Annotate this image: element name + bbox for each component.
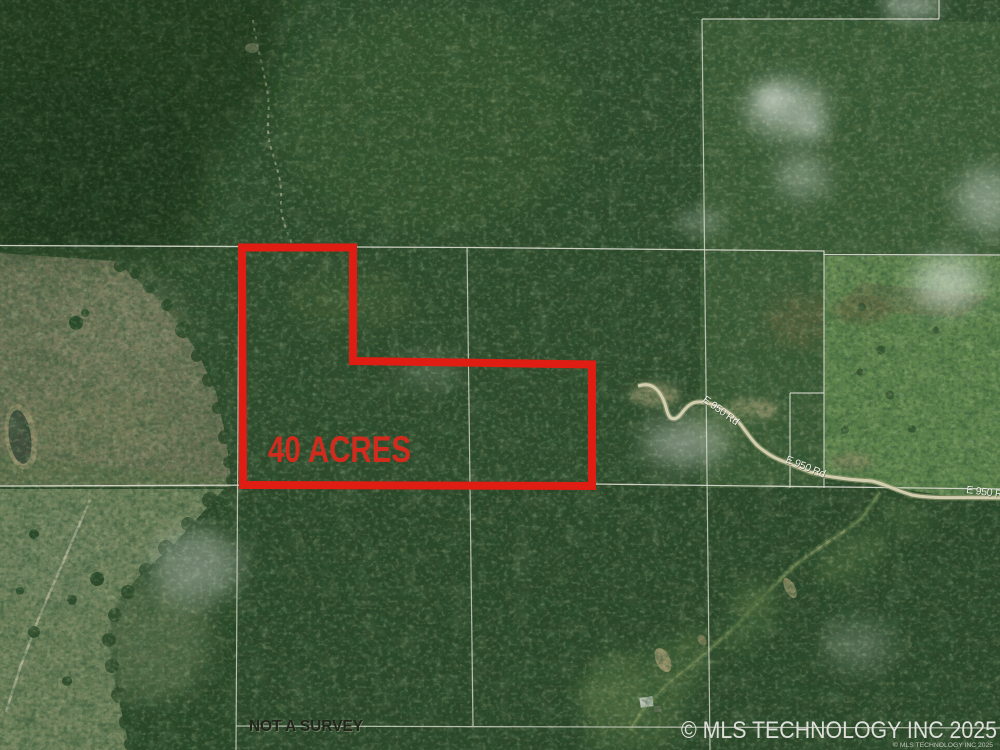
svg-text:NOT A SURVEY: NOT A SURVEY <box>249 718 363 735</box>
svg-text:© MLS TECHNOLOGY INC 2025: © MLS TECHNOLOGY INC 2025 <box>893 741 993 749</box>
svg-text:40 ACRES: 40 ACRES <box>268 429 411 470</box>
svg-text:© MLS TECHNOLOGY INC 2025: © MLS TECHNOLOGY INC 2025 <box>681 717 997 744</box>
